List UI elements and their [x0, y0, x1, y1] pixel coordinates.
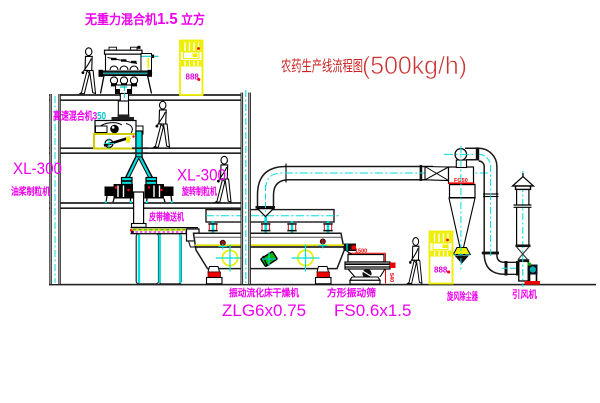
svg-text:XL-300: XL-300 [177, 166, 226, 185]
svg-text:方形振动筛: 方形振动筛 [327, 287, 376, 300]
svg-text:ZLG6x0.75: ZLG6x0.75 [222, 301, 306, 320]
svg-text:引风机: 引风机 [512, 288, 537, 301]
svg-text:1500: 1500 [355, 249, 367, 255]
svg-text:XL-300: XL-300 [13, 159, 62, 178]
svg-text:油桨制粒机: 油桨制粒机 [11, 185, 50, 198]
svg-text:540: 540 [388, 273, 394, 282]
svg-text:高速混合机350: 高速混合机350 [53, 109, 106, 123]
svg-text:FS0.6x1.5: FS0.6x1.5 [334, 301, 412, 320]
svg-text:无重力混合机1.5 立方: 无重力混合机1.5 立方 [84, 11, 205, 28]
svg-text:农药生产线流程图: 农药生产线流程图 [281, 58, 363, 75]
svg-text:旋转制粒机: 旋转制粒机 [181, 185, 217, 198]
svg-text:振动流化床干燥机: 振动流化床干燥机 [229, 287, 299, 300]
svg-text:(500kg/h): (500kg/h) [362, 52, 467, 80]
svg-text:888: 888 [434, 266, 448, 275]
svg-text:旋风除尘器: 旋风除尘器 [446, 290, 478, 303]
svg-text:皮带输送机: 皮带输送机 [148, 211, 184, 224]
svg-text:888: 888 [186, 73, 200, 82]
